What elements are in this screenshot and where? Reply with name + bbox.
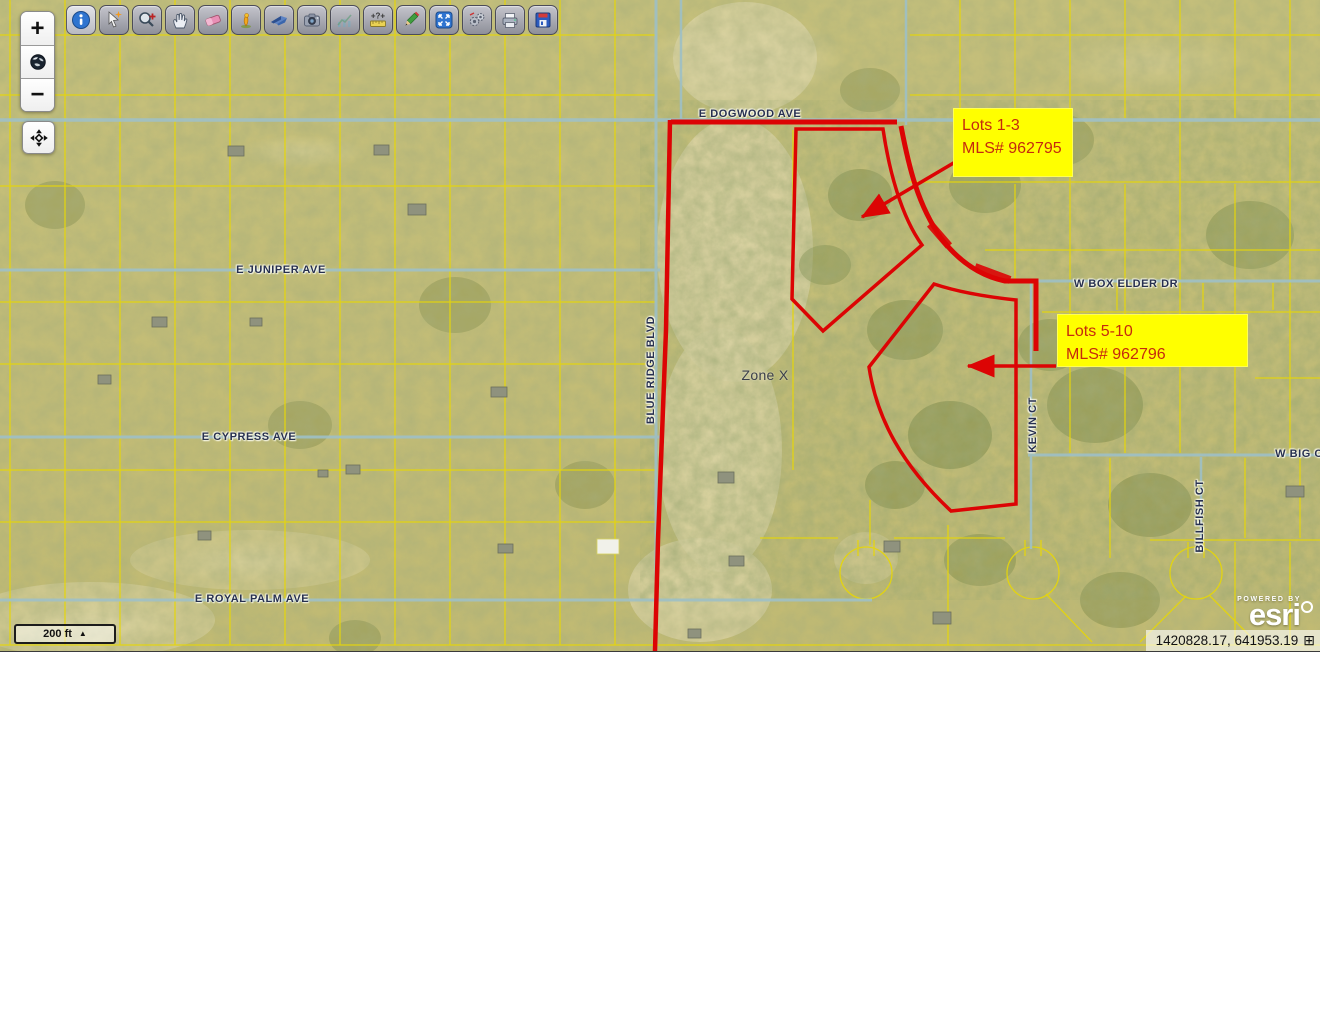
zoom-magnifier-tool-button[interactable]	[132, 5, 162, 35]
eraser-icon	[202, 9, 224, 31]
camera-tool-button[interactable]	[297, 5, 327, 35]
measure-tool-button[interactable]: +?+	[363, 5, 393, 35]
settings-gears-tool-button[interactable]	[462, 5, 492, 35]
scale-bar-label: 200 ft	[43, 628, 72, 640]
chart-icon	[334, 9, 356, 31]
pencil-icon	[400, 9, 422, 31]
esri-logo: esri	[1237, 603, 1313, 627]
annotation-line: MLS# 962796	[1066, 343, 1239, 366]
chart-tool-button[interactable]	[330, 5, 360, 35]
annotation-line: Lots 5-10	[1066, 320, 1239, 343]
svg-text:+?+: +?+	[371, 12, 386, 21]
zoom-control-stack: + −	[20, 11, 55, 112]
map-toolbar: +?+	[66, 5, 558, 35]
measure-ruler-icon: +?+	[367, 9, 389, 31]
draw-pencil-tool-button[interactable]	[396, 5, 426, 35]
street-label-cypress: E CYPRESS AVE	[202, 431, 297, 443]
gears-icon	[466, 9, 488, 31]
hand-icon	[169, 9, 191, 31]
magnifier-plus-icon	[136, 9, 158, 31]
fly-navigate-tool-button[interactable]	[264, 5, 294, 35]
pan-hand-tool-button[interactable]	[165, 5, 195, 35]
floppy-save-icon	[532, 9, 554, 31]
coordinate-readout: 1420828.17, 641953.19 ⊞	[1146, 630, 1320, 651]
select-tool-button[interactable]	[99, 5, 129, 35]
coordinate-grid-icon[interactable]: ⊞	[1303, 632, 1315, 649]
street-label-blue-ridge: BLUE RIDGE BLVD	[645, 316, 657, 424]
street-label-dogwood: E DOGWOOD AVE	[699, 108, 802, 120]
zoom-out-button[interactable]: −	[21, 78, 54, 111]
street-label-box-elder: W BOX ELDER DR	[1074, 278, 1178, 290]
print-tool-button[interactable]	[495, 5, 525, 35]
annotation-lots-5-10: Lots 5-10 MLS# 962796	[1057, 314, 1248, 367]
printer-icon	[499, 9, 521, 31]
scale-bar[interactable]: 200 ft ▲	[14, 624, 116, 644]
street-label-kevin-ct: KEVIN CT	[1027, 397, 1039, 453]
globe-icon	[28, 52, 48, 72]
annotation-line: Lots 1-3	[962, 114, 1064, 137]
info-icon	[70, 9, 92, 31]
eraser-tool-button[interactable]	[198, 5, 228, 35]
coordinate-value: 1420828.17, 641953.19	[1156, 633, 1299, 648]
info-tool-button[interactable]	[66, 5, 96, 35]
locate-pan-button[interactable]	[22, 121, 55, 154]
extent-arrows-icon	[433, 9, 455, 31]
annotation-lots-1-3: Lots 1-3 MLS# 962795	[953, 108, 1073, 177]
blue-arrow-3d-icon	[268, 9, 290, 31]
pointer-star-icon	[103, 9, 125, 31]
esri-globe-icon	[1301, 601, 1313, 613]
four-way-arrows-icon	[28, 127, 50, 149]
annotation-line: MLS# 962795	[962, 137, 1064, 160]
street-label-w-big: W BIG C	[1275, 448, 1320, 460]
map-canvas[interactable]: E DOGWOOD AVE E JUNIPER AVE E CYPRESS AV…	[0, 0, 1320, 652]
street-label-royal-palm: E ROYAL PALM AVE	[195, 593, 309, 605]
esri-attribution: POWERED BY esri	[1237, 596, 1313, 627]
zoom-in-button[interactable]: +	[21, 12, 54, 45]
marker-bird-tool-button[interactable]	[231, 5, 261, 35]
save-tool-button[interactable]	[528, 5, 558, 35]
flood-zone-label: Zone X	[742, 367, 789, 383]
camera-icon	[301, 9, 323, 31]
street-label-billfish-ct: BILLFISH CT	[1194, 479, 1206, 552]
extent-tool-button[interactable]	[429, 5, 459, 35]
scale-bar-arrow-icon: ▲	[79, 630, 87, 638]
orange-bird-icon	[235, 9, 257, 31]
full-extent-globe-button[interactable]	[21, 45, 54, 78]
street-label-juniper: E JUNIPER AVE	[236, 264, 326, 276]
